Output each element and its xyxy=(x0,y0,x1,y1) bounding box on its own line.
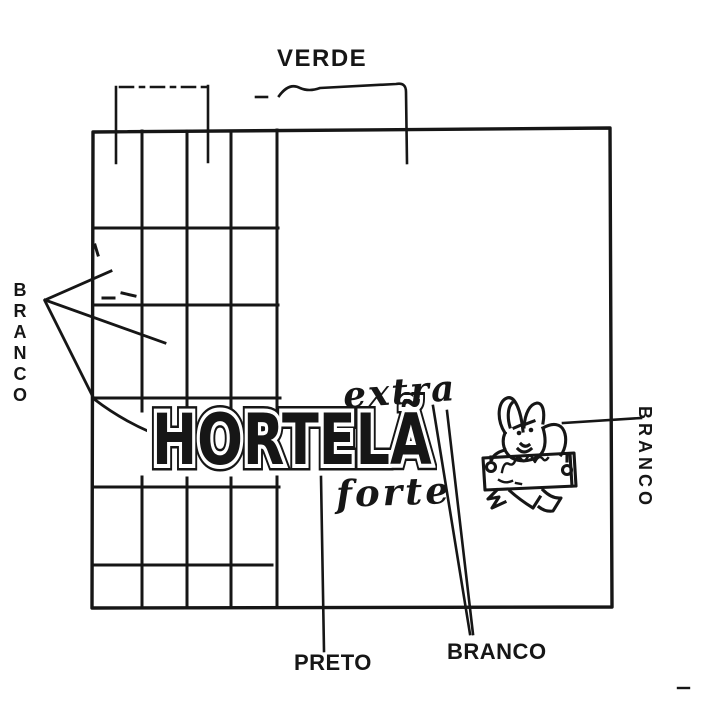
callout-preto: PRETO xyxy=(294,650,372,676)
callout-branco-bottom: BRANCO xyxy=(447,639,547,665)
line-art-canvas xyxy=(0,0,704,709)
rabbit-mascot-icon xyxy=(483,398,576,512)
callout-branco-right: BRANCO xyxy=(634,406,655,509)
trademark-drawing: HORTELÃ HORTELÃ HORTELÃ extra forte VERD… xyxy=(0,0,704,709)
checkered-grid-pattern xyxy=(93,130,280,607)
script-extra: extra xyxy=(342,367,458,417)
branco-left-leader-lines xyxy=(45,271,165,432)
callout-branco-left: BRANCO xyxy=(9,280,30,406)
preto-leader-line xyxy=(321,477,324,651)
verde-leader-lines xyxy=(116,84,407,163)
brand-wordmark: HORTELÃ HORTELÃ HORTELÃ xyxy=(152,405,442,475)
package-outline-box xyxy=(92,128,612,608)
branco-right-leader-line xyxy=(563,418,641,423)
brand-wordmark-fill: HORTELÃ xyxy=(152,405,432,475)
callout-verde: VERDE xyxy=(277,45,367,73)
script-forte: forte xyxy=(335,468,452,516)
